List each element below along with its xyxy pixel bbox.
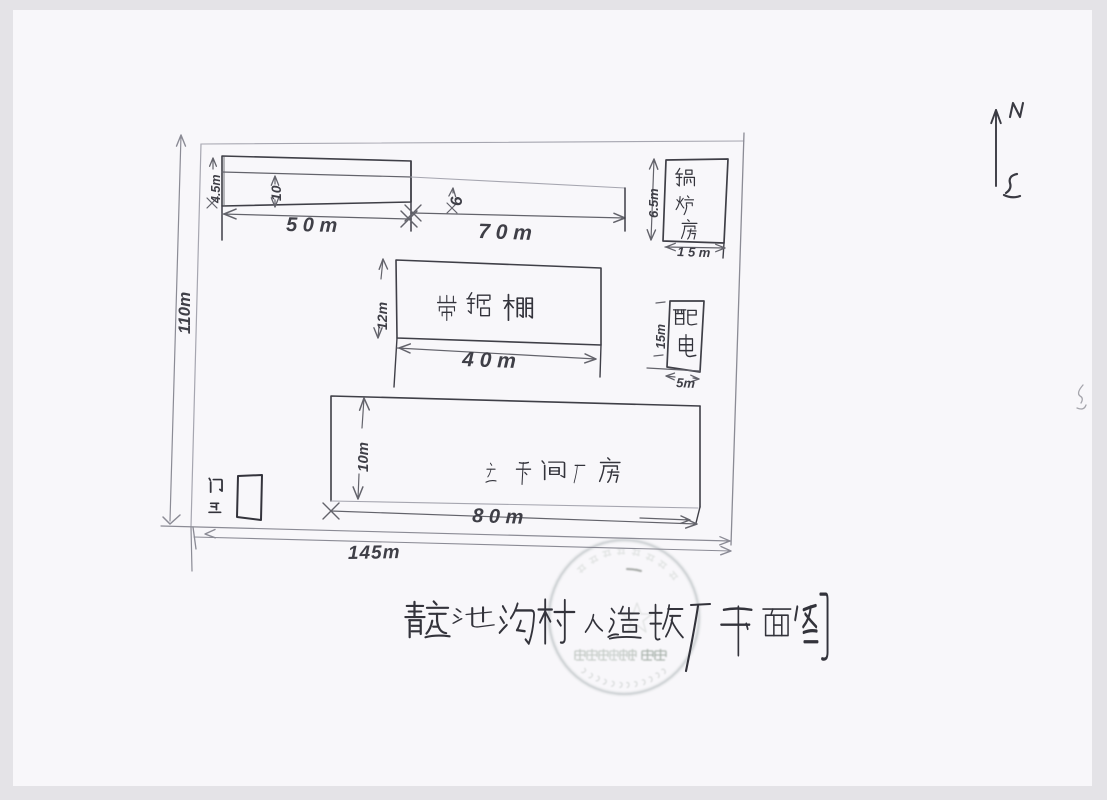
svg-text:12m: 12m [374,302,390,330]
svg-text:5m: 5m [676,375,696,391]
svg-text:8 0 m: 8 0 m [472,505,524,529]
svg-text:10m: 10m [355,442,372,472]
svg-text:145m: 145m [348,542,401,564]
svg-text:4.5m: 4.5m [209,175,223,205]
svg-text:1 5 m: 1 5 m [677,244,711,260]
svg-text:6.5m: 6.5m [646,188,661,218]
svg-text:6: 6 [447,196,466,206]
svg-text:5 0 m: 5 0 m [286,214,338,237]
svg-text:10: 10 [268,185,284,201]
svg-text:7 0 m: 7 0 m [478,220,532,245]
svg-text:15m: 15m [654,324,668,349]
svg-text:4 0 m: 4 0 m [461,348,516,373]
svg-text:110m: 110m [175,292,194,334]
